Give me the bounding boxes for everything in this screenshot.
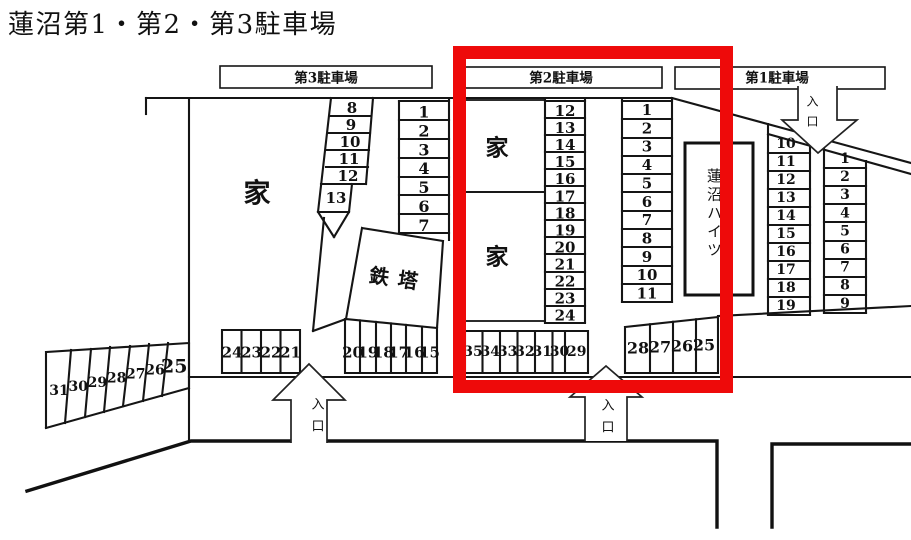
parking-space-number: 24 — [555, 307, 576, 325]
parking-space-number: 12 — [338, 167, 359, 185]
parking-space-number: 21 — [555, 255, 576, 273]
parking-space-number: 6 — [840, 242, 850, 258]
parking-space-number: 23 — [241, 344, 262, 362]
lot2-entrance-label: 入口 — [599, 398, 615, 442]
parking-space-number: 21 — [280, 344, 301, 362]
parking-space-number: 28 — [627, 339, 649, 358]
parking-space-number: 3 — [642, 138, 652, 156]
parking-space-number: 23 — [555, 290, 576, 308]
parking-space-number: 20 — [555, 238, 576, 256]
parking-space-number: 15 — [555, 153, 576, 171]
parking-space-number: 22 — [261, 344, 282, 362]
parking-space-number: 4 — [840, 205, 850, 221]
parking-space-number: 7 — [642, 211, 652, 229]
parking-space-number: 12 — [555, 102, 576, 120]
parking-space-number: 31 — [49, 383, 68, 399]
parking-space-number: 5 — [642, 174, 652, 192]
parking-space-number: 1 — [642, 101, 652, 119]
parking-space-number: 10 — [637, 266, 658, 284]
lot3-entrance-label: 入口 — [309, 397, 325, 441]
parking-space-number: 27 — [126, 367, 145, 383]
parking-map: 第3駐車場 第2駐車場 第1駐車場 1234567 89101112 13 24… — [0, 0, 911, 540]
parking-space-number: 2 — [418, 121, 429, 140]
lot3-space13-number: 13 — [326, 189, 347, 207]
lot3-house-label: 家 — [244, 178, 271, 210]
parking-space-number: 2 — [642, 119, 652, 137]
parking-space-number: 14 — [776, 208, 796, 224]
parking-space-number: 17 — [555, 187, 576, 205]
parking-space-number: 19 — [776, 298, 795, 314]
parking-space-number: 8 — [347, 99, 357, 117]
parking-space-number: 5 — [840, 223, 850, 239]
parking-space-number: 4 — [418, 159, 429, 178]
parking-space-number: 29 — [567, 344, 586, 360]
parking-space-number: 15 — [776, 226, 795, 242]
parking-space-number: 3 — [418, 140, 429, 159]
parking-space-number: 9 — [346, 116, 356, 134]
parking-space-number: 19 — [555, 221, 576, 239]
parking-space-number: 16 — [776, 244, 795, 260]
parking-space-number: 6 — [642, 193, 652, 211]
parking-space-number: 26 — [671, 337, 693, 356]
parking-space-number: 24 — [222, 344, 243, 362]
lot2-label: 第2駐車場 — [529, 70, 593, 87]
parking-space-number: 4 — [642, 156, 652, 174]
parking-space-number: 17 — [776, 262, 795, 278]
parking-space-number: 18 — [776, 280, 795, 296]
parking-space-number: 1 — [840, 151, 850, 167]
lot3-bottom-left-row-numbers: 24232221 — [222, 344, 301, 362]
lot3-right-column-numbers: 1234567 — [418, 103, 429, 235]
parking-space-number: 12 — [776, 172, 795, 188]
parking-space-number: 16 — [555, 170, 576, 188]
parking-space-number: 27 — [649, 338, 671, 357]
lot1-label: 第1駐車場 — [745, 70, 809, 87]
lot3-bottom-right-row-numbers: 201918171615 — [342, 344, 440, 362]
parking-space-number: 5 — [418, 178, 429, 197]
parking-space-number: 7 — [418, 216, 429, 235]
parking-space-number: 8 — [642, 229, 652, 247]
parking-map-drawing: 第3駐車場 第2駐車場 第1駐車場 1234567 89101112 13 24… — [0, 0, 911, 540]
parking-space-number: 3 — [840, 187, 850, 203]
parking-space-number: 1 — [418, 103, 429, 122]
parking-space-number: 10 — [776, 136, 796, 152]
lot2-bottom-right-row-numbers: 28272625 — [627, 336, 715, 358]
parking-space-number: 25 — [161, 355, 187, 377]
parking-space-number: 8 — [840, 278, 850, 294]
parking-space-number: 11 — [339, 150, 360, 168]
parking-space-number: 18 — [555, 204, 576, 222]
lot2-bottom-left-row-numbers: 35343332313029 — [463, 344, 586, 360]
road-lines — [27, 441, 911, 527]
lot3-label: 第3駐車場 — [294, 70, 358, 87]
parking-space-number: 14 — [555, 136, 576, 154]
parking-space-number: 11 — [637, 285, 658, 303]
parking-space-number: 28 — [107, 371, 126, 387]
lot2-house-label-1: 家 — [486, 135, 509, 162]
page-title: 蓮沼第1・第2・第3駐車場 — [8, 10, 337, 40]
parking-space-number: 13 — [555, 119, 576, 137]
parking-space-number: 30 — [68, 379, 88, 395]
lot1-entrance-label: 入口 — [805, 95, 819, 135]
lot2-house-label-2: 家 — [486, 244, 509, 271]
lot2-middle-column-numbers: 12131415161718192021222324 — [555, 102, 576, 325]
lot3-slant-column-numbers: 89101112 — [338, 99, 361, 185]
parking-space-number: 9 — [642, 248, 652, 266]
parking-space-number: 13 — [326, 189, 347, 207]
parking-space-number: 6 — [418, 197, 429, 216]
parking-space-number: 2 — [840, 169, 850, 185]
steel-tower-label: 鉄塔 — [368, 263, 429, 295]
parking-space-number: 13 — [776, 190, 795, 206]
parking-space-number: 15 — [419, 344, 440, 362]
parking-space-number: 7 — [840, 260, 850, 276]
parking-space-number: 22 — [555, 273, 576, 291]
parking-space-number: 25 — [693, 336, 715, 355]
lot2-right-column-numbers: 1234567891011 — [637, 101, 658, 303]
parking-space-number: 11 — [776, 154, 795, 170]
parking-space-number: 10 — [340, 133, 361, 151]
lot1-right-column-numbers: 123456789 — [840, 151, 850, 312]
parking-space-number: 29 — [88, 375, 107, 391]
lot-name-labels: 第3駐車場 第2駐車場 第1駐車場 — [220, 66, 885, 89]
parking-space-number: 9 — [840, 296, 850, 312]
